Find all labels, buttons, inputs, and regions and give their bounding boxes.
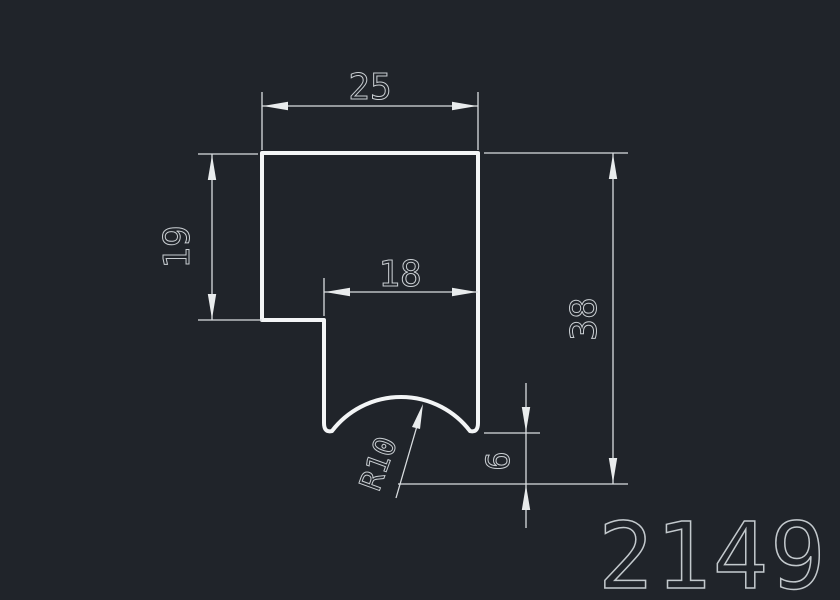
leader-line — [396, 426, 417, 498]
arrowhead — [452, 102, 477, 110]
arrowhead — [609, 458, 617, 483]
dimension-25-top-width: 25 — [262, 67, 478, 150]
part-number: 2149 — [598, 503, 828, 600]
dimension-label: 6 — [479, 451, 517, 470]
arrowhead — [609, 154, 617, 179]
arrowhead — [452, 288, 477, 296]
dimension-label: 19 — [157, 225, 198, 268]
arrowhead — [208, 294, 216, 319]
radius-label: R10 — [353, 432, 404, 495]
dimension-18-slot-width: 18 — [324, 254, 478, 316]
arrowhead — [522, 407, 530, 432]
cad-drawing: 25 19 18 38 — [0, 0, 840, 600]
dimension-38-overall-height: 38 — [398, 153, 628, 484]
cad-drawing-canvas: 25 19 18 38 — [0, 0, 840, 600]
dimension-label: 18 — [378, 254, 421, 295]
arrowhead — [208, 155, 216, 180]
dimension-label: 38 — [564, 297, 605, 340]
arrowhead — [522, 485, 530, 510]
dimension-label: 25 — [348, 67, 391, 108]
leader-arrowhead — [412, 404, 423, 429]
arrowhead — [325, 288, 350, 296]
arrowhead — [263, 102, 288, 110]
dimension-6-bottom-offset: 6 — [479, 383, 540, 528]
dimension-19-left-height: 19 — [157, 154, 262, 320]
